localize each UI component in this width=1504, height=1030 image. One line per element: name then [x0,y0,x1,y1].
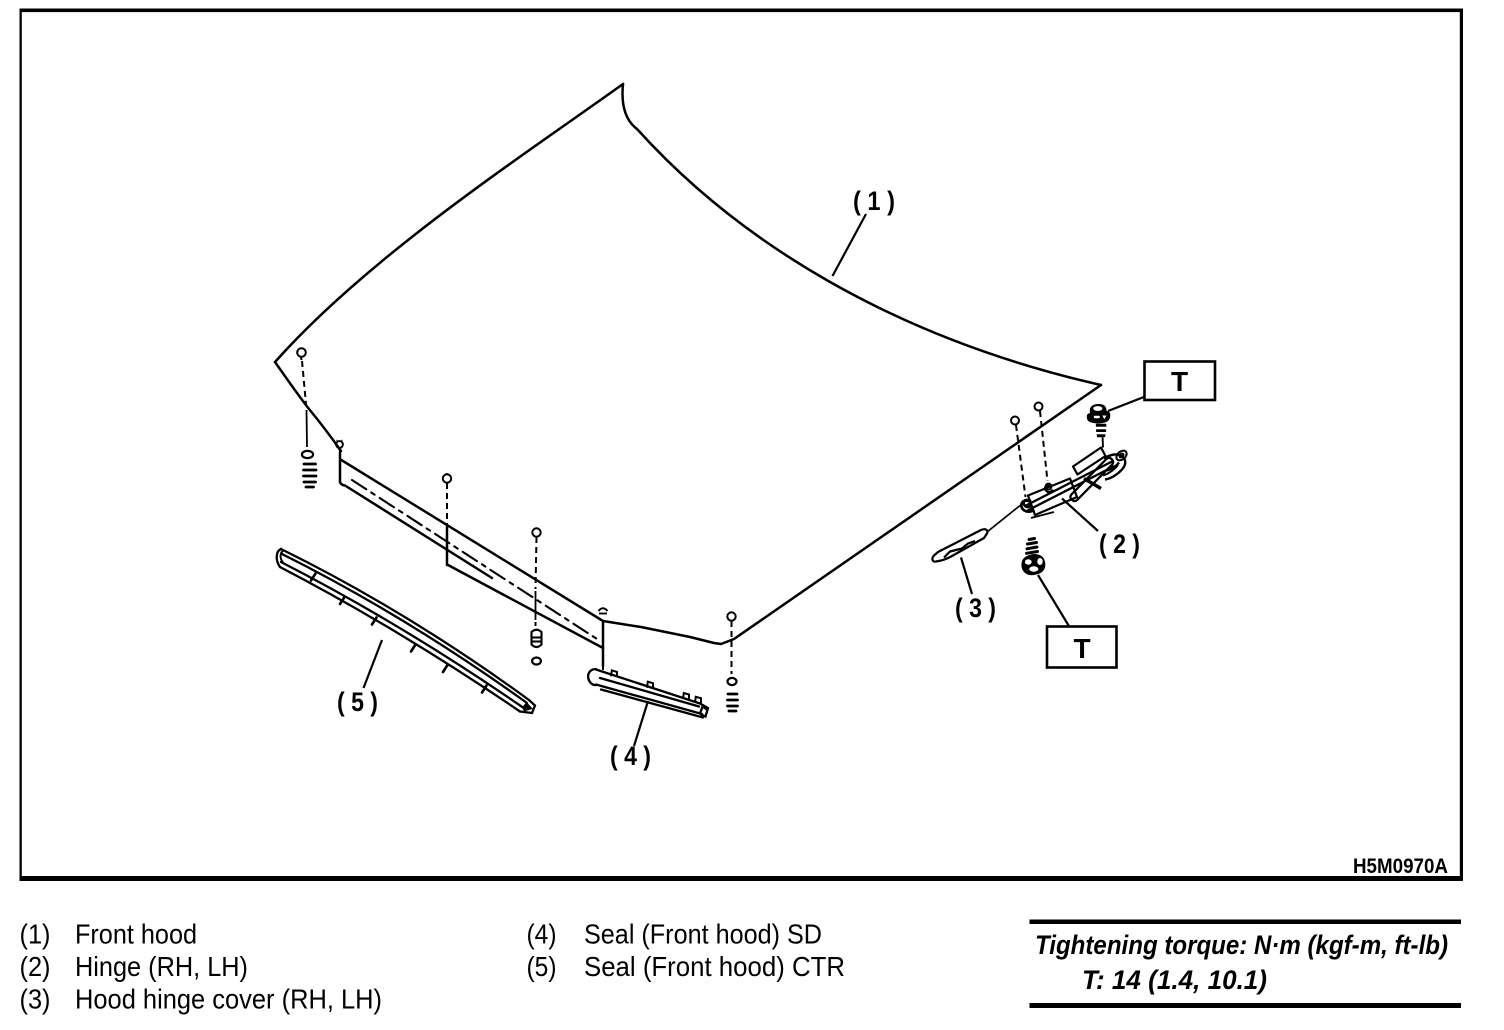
svg-text:( 2 ): ( 2 ) [1099,529,1140,559]
svg-text:Hood hinge cover (RH, LH): Hood hinge cover (RH, LH) [75,984,382,1015]
svg-text:Front hood: Front hood [75,919,197,950]
svg-text:(4): (4) [527,919,557,950]
svg-text:(1): (1) [20,919,51,950]
svg-text:Seal (Front hood) CTR: Seal (Front hood) CTR [584,951,845,982]
svg-text:( 5 ): ( 5 ) [337,687,378,717]
svg-text:(3): (3) [20,984,51,1015]
svg-text:( 3 ): ( 3 ) [955,593,996,623]
svg-text:(5): (5) [527,951,557,982]
svg-text:T: T [1074,633,1091,664]
svg-text:Seal (Front hood) SD: Seal (Front hood) SD [584,919,822,950]
svg-text:( 1 ): ( 1 ) [853,186,895,216]
svg-text:( 4 ): ( 4 ) [610,741,651,771]
svg-text:T: T [1171,366,1188,397]
svg-text:T: 14 (1.4, 10.1): T: 14 (1.4, 10.1) [1082,965,1267,995]
svg-text:Tightening torque: N·m (kgf-m,: Tightening torque: N·m (kgf-m, ft-lb) [1035,930,1448,960]
svg-text:(2): (2) [20,951,51,982]
svg-text:H5M0970A: H5M0970A [1353,855,1448,878]
svg-text:Hinge (RH, LH): Hinge (RH, LH) [75,951,248,982]
